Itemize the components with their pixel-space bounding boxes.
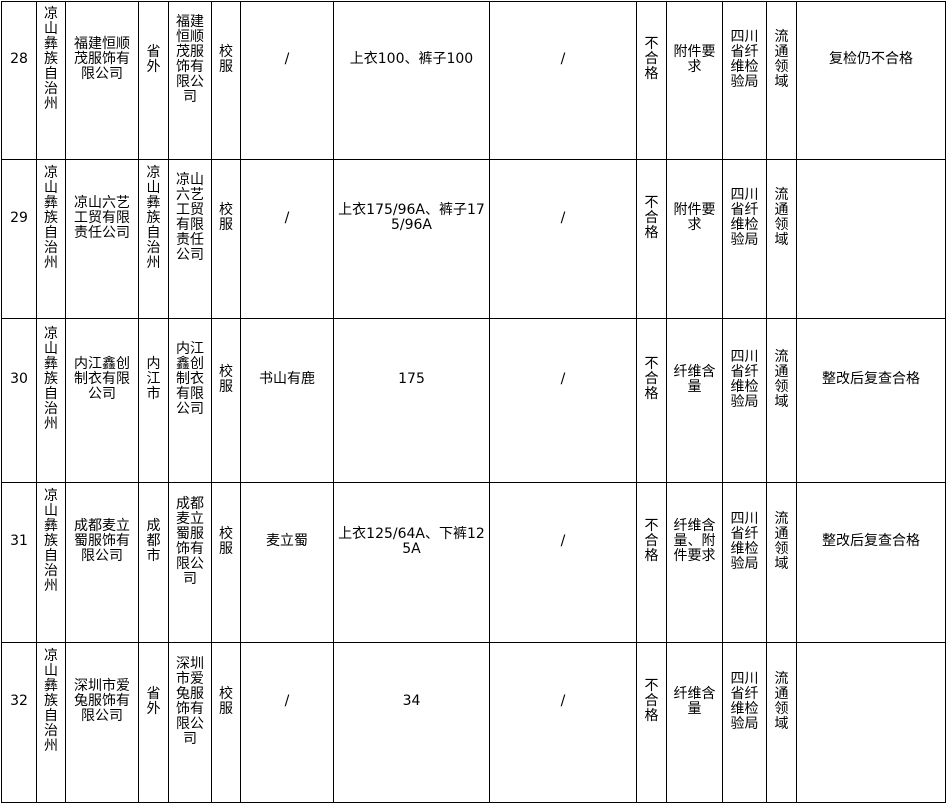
cell-producer-location: 内江市 [139, 319, 169, 483]
cell-sampling-field: 流通领域 [767, 643, 797, 803]
cell-remark: 整改后复查合格 [797, 319, 946, 483]
cell-spec: 34 [334, 643, 490, 803]
cell-seller: 深圳市爱兔服饰有限公司 [169, 643, 212, 803]
cell-sampling-field: 流通领域 [767, 2, 797, 160]
cell-inspection-agency: 四川省纤维检验局 [723, 319, 767, 483]
cell-failed-items: 纤维含量 [667, 319, 723, 483]
cell-inspection-agency: 四川省纤维检验局 [723, 160, 767, 319]
cell-inspection-agency: 四川省纤维检验局 [723, 483, 767, 643]
cell-sampling-field: 流通领域 [767, 483, 797, 643]
cell-batch: / [490, 2, 637, 160]
cell-row-number: 29 [2, 160, 37, 319]
table-body: 28 凉山彝族自治州 福建恒顺茂服饰有限公司 省外 福建恒顺茂服饰有限公司 校服… [2, 2, 946, 803]
cell-region: 凉山彝族自治州 [37, 2, 66, 160]
cell-spec: 上衣175/96A、裤子175/96A [334, 160, 490, 319]
cell-seller: 内江鑫创制衣有限公司 [169, 319, 212, 483]
cell-producer: 凉山六艺工贸有限责任公司 [66, 160, 139, 319]
cell-producer: 福建恒顺茂服饰有限公司 [66, 2, 139, 160]
table-row: 28 凉山彝族自治州 福建恒顺茂服饰有限公司 省外 福建恒顺茂服饰有限公司 校服… [2, 2, 946, 160]
cell-product: 校服 [212, 319, 241, 483]
cell-producer: 成都麦立蜀服饰有限公司 [66, 483, 139, 643]
cell-batch: / [490, 319, 637, 483]
cell-product: 校服 [212, 160, 241, 319]
cell-remark: 复检仍不合格 [797, 2, 946, 160]
cell-result: 不合格 [637, 483, 667, 643]
cell-product: 校服 [212, 643, 241, 803]
cell-brand: / [241, 2, 334, 160]
cell-producer-location: 省外 [139, 643, 169, 803]
cell-brand: / [241, 643, 334, 803]
cell-spec: 上衣100、裤子100 [334, 2, 490, 160]
cell-producer-location: 省外 [139, 2, 169, 160]
cell-region: 凉山彝族自治州 [37, 643, 66, 803]
cell-product: 校服 [212, 483, 241, 643]
table-row: 29 凉山彝族自治州 凉山六艺工贸有限责任公司 凉山彝族自治州 凉山六艺工贸有限… [2, 160, 946, 319]
cell-seller: 福建恒顺茂服饰有限公司 [169, 2, 212, 160]
cell-failed-items: 附件要求 [667, 160, 723, 319]
cell-producer: 内江鑫创制衣有限公司 [66, 319, 139, 483]
cell-result: 不合格 [637, 643, 667, 803]
cell-failed-items: 纤维含量 [667, 643, 723, 803]
table-row: 31 凉山彝族自治州 成都麦立蜀服饰有限公司 成都市 成都麦立蜀服饰有限公司 校… [2, 483, 946, 643]
cell-producer: 深圳市爱兔服饰有限公司 [66, 643, 139, 803]
cell-region: 凉山彝族自治州 [37, 160, 66, 319]
cell-region: 凉山彝族自治州 [37, 483, 66, 643]
cell-seller: 成都麦立蜀服饰有限公司 [169, 483, 212, 643]
cell-inspection-agency: 四川省纤维检验局 [723, 2, 767, 160]
cell-row-number: 31 [2, 483, 37, 643]
cell-result: 不合格 [637, 160, 667, 319]
cell-seller: 凉山六艺工贸有限责任公司 [169, 160, 212, 319]
table-row: 32 凉山彝族自治州 深圳市爱兔服饰有限公司 省外 深圳市爱兔服饰有限公司 校服… [2, 643, 946, 803]
cell-producer-location: 凉山彝族自治州 [139, 160, 169, 319]
cell-brand: 麦立蜀 [241, 483, 334, 643]
cell-region: 凉山彝族自治州 [37, 319, 66, 483]
cell-inspection-agency: 四川省纤维检验局 [723, 643, 767, 803]
cell-row-number: 28 [2, 2, 37, 160]
cell-batch: / [490, 643, 637, 803]
cell-row-number: 32 [2, 643, 37, 803]
cell-remark: 整改后复查合格 [797, 483, 946, 643]
cell-spec: 175 [334, 319, 490, 483]
cell-brand: / [241, 160, 334, 319]
cell-remark [797, 160, 946, 319]
cell-row-number: 30 [2, 319, 37, 483]
cell-spec: 上衣125/64A、下裤125A [334, 483, 490, 643]
cell-batch: / [490, 160, 637, 319]
cell-failed-items: 纤维含量、附件要求 [667, 483, 723, 643]
cell-product: 校服 [212, 2, 241, 160]
cell-result: 不合格 [637, 319, 667, 483]
cell-brand: 书山有鹿 [241, 319, 334, 483]
cell-failed-items: 附件要求 [667, 2, 723, 160]
cell-batch: / [490, 483, 637, 643]
cell-sampling-field: 流通领域 [767, 319, 797, 483]
cell-remark [797, 643, 946, 803]
cell-sampling-field: 流通领域 [767, 160, 797, 319]
cell-result: 不合格 [637, 2, 667, 160]
inspection-results-table: 28 凉山彝族自治州 福建恒顺茂服饰有限公司 省外 福建恒顺茂服饰有限公司 校服… [1, 1, 946, 803]
cell-producer-location: 成都市 [139, 483, 169, 643]
table-row: 30 凉山彝族自治州 内江鑫创制衣有限公司 内江市 内江鑫创制衣有限公司 校服 … [2, 319, 946, 483]
